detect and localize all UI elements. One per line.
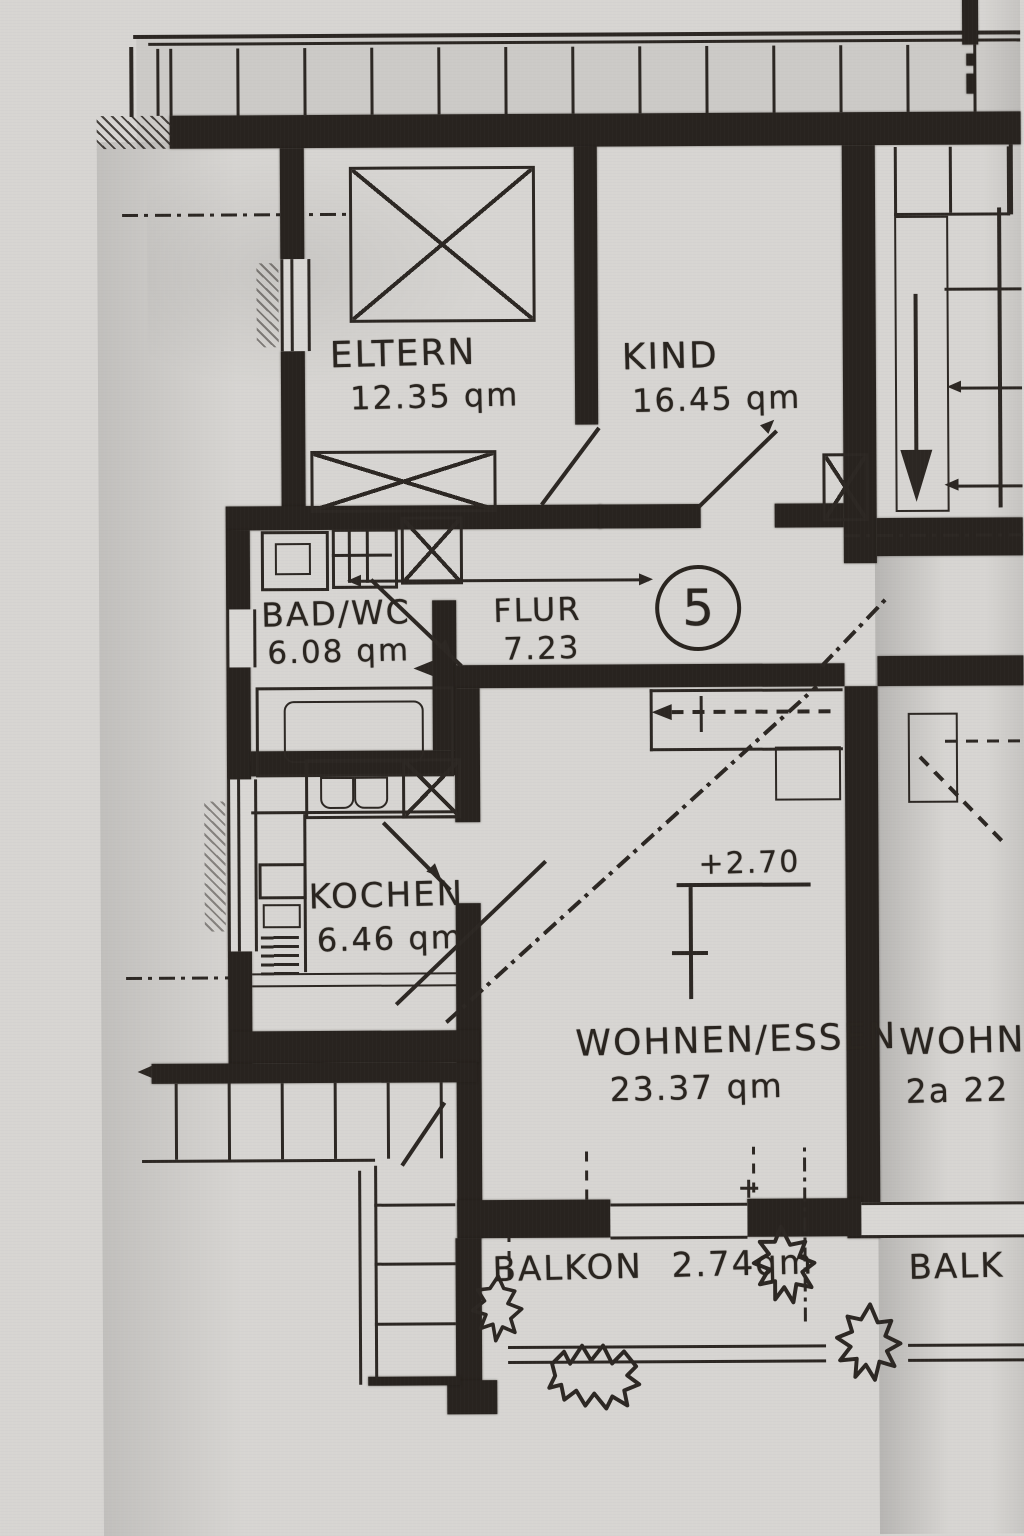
sink-bowl-left: [320, 777, 354, 809]
washbasin-inner: [275, 543, 311, 575]
door-leaf-eltern: [540, 427, 601, 506]
walkway-bottom-line: [142, 1159, 375, 1163]
duct-line-1: [944, 287, 1021, 290]
door-leaf-kind: [697, 429, 778, 508]
entrance-arrow-line: [672, 709, 837, 714]
room-area-kochen: 6.46 qm: [317, 921, 465, 957]
balcony-window-left: [610, 1203, 747, 1240]
stove-icon: [258, 863, 306, 899]
balkon-name: BALKON: [492, 1247, 643, 1291]
kind-south-wall-left: [599, 504, 701, 529]
centerline-dash-1: [966, 54, 974, 66]
party-wall-lower: [845, 686, 881, 1238]
right-unit-wall-mid: [877, 655, 1023, 686]
room-area-flur: 7.23: [503, 633, 581, 666]
party-wall-shaft-x-icon: [822, 453, 868, 521]
flur-shaft-box: [775, 746, 841, 800]
floor-plan: ELTERN 12.35 qm KIND 16.45 qm BAD/WC 6.0…: [0, 0, 1024, 1536]
right-unit-dash-line: [945, 739, 1024, 742]
skylight-x-icon: [349, 166, 536, 323]
kitchen-window: [227, 779, 258, 951]
room-label-wohnen-essen: WOHNEN/ESSEN: [575, 1019, 898, 1063]
floor-plan-scan: ELTERN 12.35 qm KIND 16.45 qm BAD/WC 6.0…: [0, 0, 1024, 1536]
stair-rung-1: [374, 1203, 455, 1206]
plant-icon: [543, 1321, 648, 1412]
room-label-kind: KIND: [621, 338, 719, 376]
balcony-wall-segment-1: [457, 1199, 610, 1238]
bathtub-inner: [284, 700, 424, 763]
top-edge-line-outer: [133, 30, 1020, 39]
entrance-tick: [700, 696, 703, 732]
eltern-window-midline: [290, 259, 293, 351]
duct-arrow-2: [947, 381, 961, 393]
bath-window: [226, 609, 256, 667]
center-line-left-lower: [126, 976, 238, 980]
room-label-flur: FLUR: [493, 593, 582, 627]
centerline-dash-2: [966, 74, 974, 94]
top-band-left-cap: [129, 47, 133, 117]
room-area-kind: 16.45 qm: [632, 381, 802, 417]
stair-strip-outer-line: [358, 1171, 362, 1385]
balcony-dash-tick-1: [585, 1148, 588, 1200]
neighbor-label-wohnen: WOHNE: [899, 1022, 1024, 1062]
wc-grid-h: [332, 554, 392, 557]
eltern-kind-divider: [574, 147, 598, 425]
entrance-box: [650, 688, 843, 751]
dimension-arrow-right: [639, 573, 653, 585]
neighbor-area: 2a 22: [905, 1072, 1009, 1108]
room-area-bad-wc: 6.08 qm: [267, 635, 410, 669]
eltern-window: [280, 259, 310, 351]
dimension-line: [361, 578, 649, 583]
radiator-coil-icon: [261, 933, 299, 975]
entrance-arrow-icon: [652, 704, 672, 720]
scan-shadow-right-edge: [982, 0, 1024, 1534]
appliance-icon: [263, 904, 301, 928]
eltern-window-hatch: [256, 263, 278, 347]
level-stem: [689, 887, 694, 999]
dimension-arrow-left: [347, 575, 361, 587]
neighbor-label-balkon: BALK: [908, 1249, 1005, 1285]
centerline-stub-top: [962, 0, 978, 45]
walkway-top-wall: [152, 1062, 477, 1084]
vent-stem: [914, 294, 919, 452]
duct-line-2: [961, 386, 1022, 389]
vent-arrow-icon: [900, 450, 932, 502]
walkway-band-segments: [167, 1082, 457, 1160]
unit-number-badge: 5: [655, 565, 741, 651]
level-annotation: +2.70: [698, 848, 801, 880]
eltern-west-wall-upper: [280, 148, 305, 259]
bath-shaft-x-icon: [401, 516, 463, 584]
unit-number: 5: [682, 579, 714, 637]
plant-icon: [831, 1298, 912, 1398]
top-wall: [170, 111, 1021, 148]
center-line-left-upper: [122, 213, 347, 217]
balcony-edge-line-right: [908, 1343, 1024, 1362]
stair-rung-2: [375, 1262, 456, 1265]
survey-cross-v: [747, 1180, 750, 1198]
stair-rung-3: [375, 1322, 456, 1325]
duct-arrow-3: [944, 479, 958, 491]
stair-strip: [374, 1165, 459, 1378]
balcony-window-right: [861, 1201, 1024, 1238]
room-area-eltern: 12.35 qm: [350, 378, 520, 414]
right-unit-top-window-mullion: [949, 147, 952, 213]
wardrobe-x-icon: [310, 450, 496, 513]
top-band-segments: [136, 44, 1020, 116]
kitchen-south-wall: [231, 1030, 479, 1063]
level-cross-tick: [672, 951, 708, 955]
duct-line-3: [959, 484, 1023, 487]
room-label-bad-wc: BAD/WC: [261, 595, 411, 632]
walkway-arrow-tick: [138, 1066, 152, 1078]
balkon-area: 2.74qm: [671, 1242, 814, 1285]
right-unit-edge-line: [1009, 144, 1013, 214]
duct-line-vertical: [997, 207, 1003, 507]
sink-bowl-right: [354, 777, 388, 809]
room-label-eltern: ELTERN: [329, 335, 476, 375]
wall-dimension-arrow: [413, 660, 433, 676]
room-area-wohnen-essen: 23.37 qm: [609, 1069, 784, 1106]
kitchen-window-hatch: [204, 802, 226, 932]
top-wall-hatch-stub: [97, 116, 172, 149]
room-label-kochen: KOCHEN: [308, 877, 464, 915]
room-label-balkon: BALKON 2.74qm: [492, 1245, 814, 1287]
eltern-west-wall-lower: [281, 351, 306, 508]
level-underline: [677, 882, 811, 887]
